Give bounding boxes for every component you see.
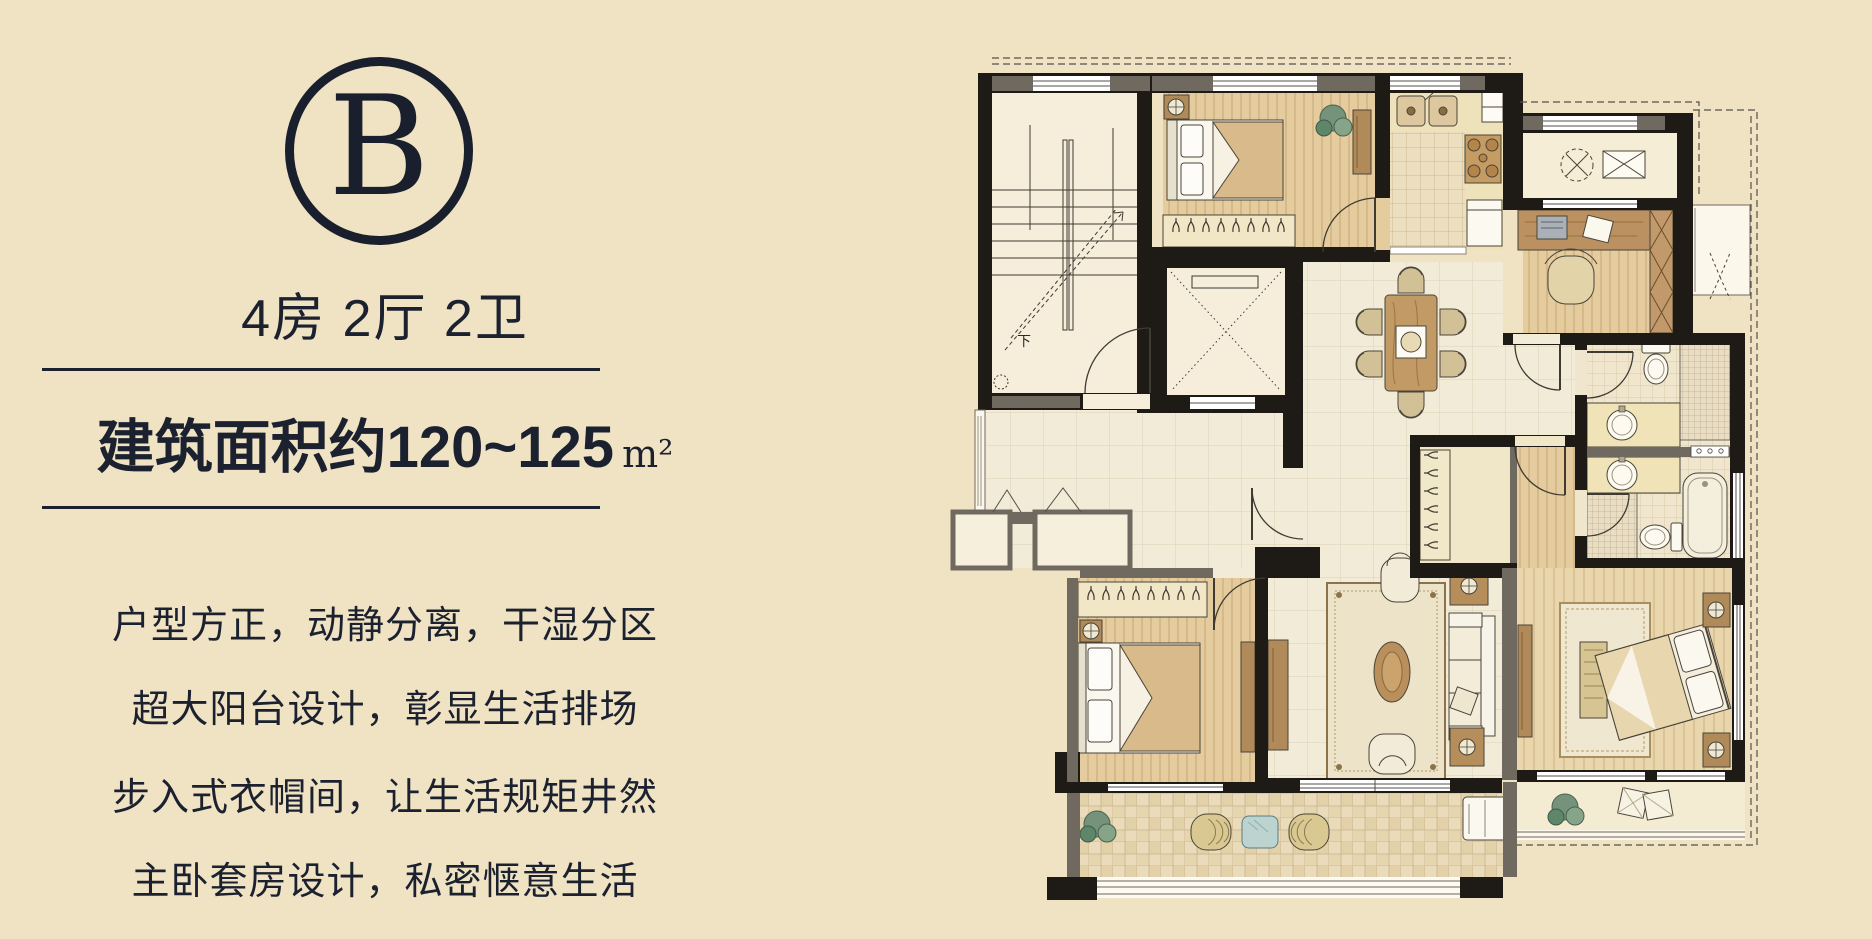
office-chair-icon xyxy=(1548,256,1594,304)
area-unit: m² xyxy=(622,432,673,476)
tv-console xyxy=(1241,642,1255,752)
feature-line: 超大阳台设计，彰显生活排场 xyxy=(0,678,770,733)
feature-line: 步入式衣帽间，让生活规矩井然 xyxy=(0,766,770,821)
sofa-icon xyxy=(1481,616,1495,736)
block-logo: B xyxy=(285,57,473,245)
ac-platform xyxy=(1690,205,1750,295)
area-prefix: 建筑面积约 xyxy=(97,415,387,480)
info-panel: B 4房 2厅 2卫 建筑面积约120~125m² 户型方正，动静分离，干湿分区… xyxy=(0,0,770,939)
unit-layout-title: 4房 2厅 2卫 xyxy=(0,276,770,351)
feature-line: 户型方正，动静分离，干湿分区 xyxy=(0,594,770,649)
divider-top xyxy=(42,368,600,371)
toilet-icon xyxy=(1642,342,1670,384)
walk-in-closet-furniture xyxy=(1420,450,1450,560)
area-value: 120~125 xyxy=(387,415,614,480)
guest-shower xyxy=(1680,342,1730,440)
stair-down-label: 下 xyxy=(1017,333,1031,349)
armchair-icon xyxy=(1369,734,1415,774)
master-shower xyxy=(1587,490,1637,560)
balcony-table-icon xyxy=(1242,816,1278,848)
floor-plan-drawing: 下 xyxy=(945,50,1775,910)
block-letter: B xyxy=(328,78,429,216)
feature-line: 主卧套房设计，私密惬意生活 xyxy=(0,850,770,905)
tv-console xyxy=(1268,640,1288,750)
stairwell-floor xyxy=(992,93,1137,393)
floor-plan: 下 xyxy=(945,50,1775,910)
laundry-balcony-floor xyxy=(1523,133,1677,198)
toilet-icon xyxy=(1640,523,1682,551)
building-area: 建筑面积约120~125m² xyxy=(0,400,770,484)
divider-bottom xyxy=(42,506,600,509)
